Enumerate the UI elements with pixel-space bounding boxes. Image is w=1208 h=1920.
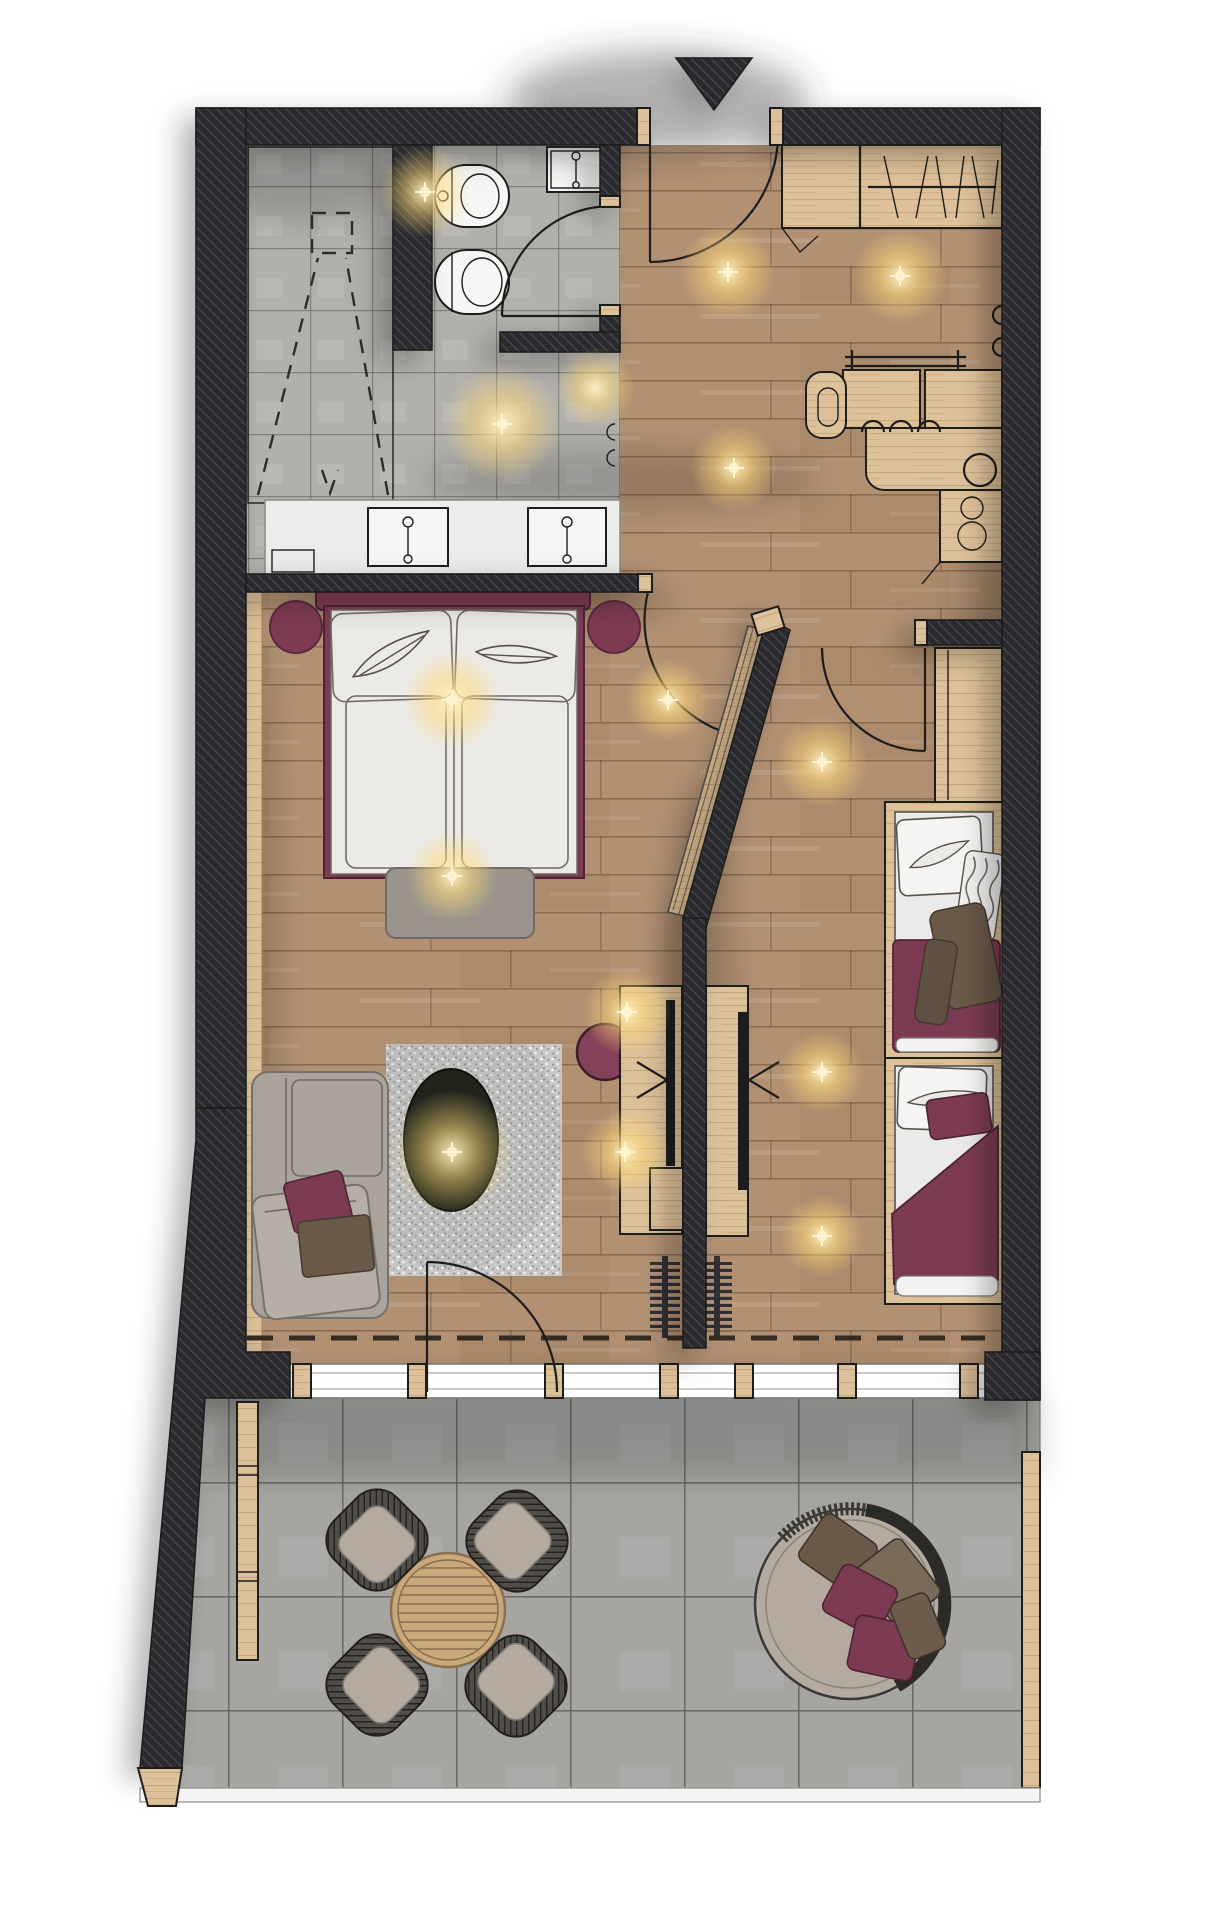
bedroom-door-jamb <box>638 574 652 592</box>
nightstand-left <box>270 601 322 653</box>
window-front <box>290 1364 985 1398</box>
wall-right <box>1002 108 1040 1400</box>
wall-niche-stub <box>927 620 1002 645</box>
nightstand-right <box>588 601 640 653</box>
wall-pier-bottom-right <box>985 1352 1040 1400</box>
washbasin <box>547 147 605 192</box>
kid2-burgundy-pillow <box>926 1092 993 1140</box>
kid-bed-2 <box>885 1058 1003 1304</box>
entrance-jamb-right <box>770 108 783 145</box>
kid-bed-1 <box>885 802 1006 1058</box>
wall-bath-bottom <box>246 574 650 592</box>
floor-plan <box>0 0 1208 1920</box>
toilet <box>435 250 509 314</box>
sofa-throw-brown <box>297 1214 374 1277</box>
niche-jamb <box>915 620 927 645</box>
desk-chair <box>806 372 846 438</box>
bathroom-door-jamb-top <box>600 196 620 207</box>
daybed <box>755 1509 948 1699</box>
wall-top-left <box>196 108 640 145</box>
tv-corridor <box>738 1012 747 1190</box>
tall-wardrobe <box>935 648 1002 802</box>
sofa <box>251 1072 388 1321</box>
vanity <box>265 500 620 574</box>
terrace-railing-bottom <box>140 1788 1040 1802</box>
entrance-jamb-left <box>637 108 650 145</box>
terrace-bench <box>237 1402 258 1660</box>
floor-plan-page <box>0 0 1208 1920</box>
radiator-left <box>650 1256 680 1338</box>
wall-left <box>196 108 246 1108</box>
terrace-railing-right <box>1022 1452 1040 1788</box>
bathroom-door-jamb-bottom <box>600 305 620 316</box>
